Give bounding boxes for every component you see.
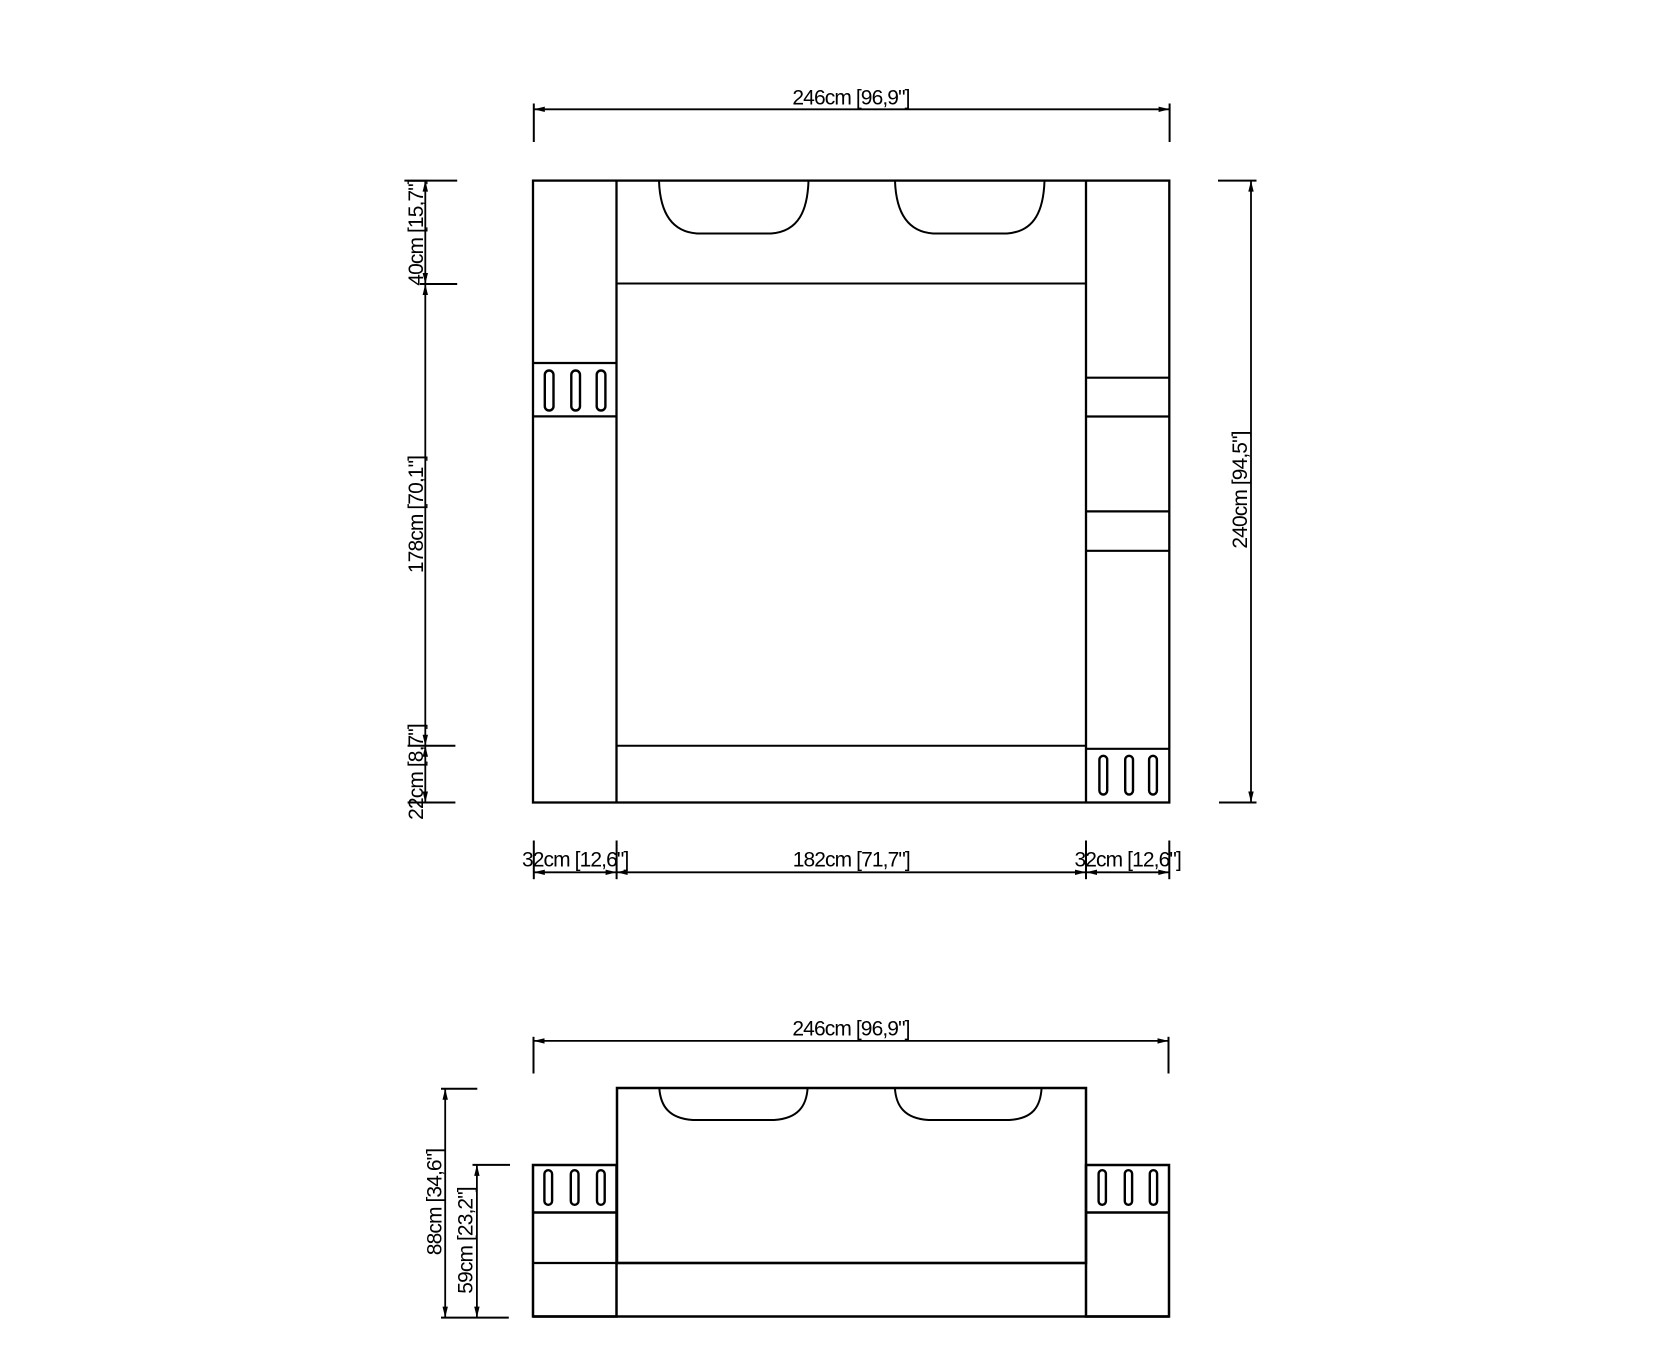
- svg-text:178cm [70,1"]: 178cm [70,1"]: [405, 456, 428, 573]
- svg-text:88cm [34,6"]: 88cm [34,6"]: [423, 1149, 446, 1255]
- svg-text:246cm [96,9"]: 246cm [96,9"]: [792, 87, 909, 110]
- svg-text:22cm [8,7"]: 22cm [8,7"]: [405, 724, 428, 820]
- svg-text:59cm [23,2"]: 59cm [23,2"]: [455, 1187, 478, 1293]
- svg-text:32cm [12,6"]: 32cm [12,6"]: [522, 849, 628, 872]
- svg-text:246cm [96,9"]: 246cm [96,9"]: [792, 1018, 909, 1041]
- svg-text:32cm [12,6"]: 32cm [12,6"]: [1075, 849, 1181, 872]
- svg-text:240cm [94,5"]: 240cm [94,5"]: [1229, 431, 1252, 548]
- svg-text:40cm [15,7"]: 40cm [15,7"]: [405, 179, 428, 285]
- svg-text:182cm [71,7"]: 182cm [71,7"]: [793, 849, 910, 872]
